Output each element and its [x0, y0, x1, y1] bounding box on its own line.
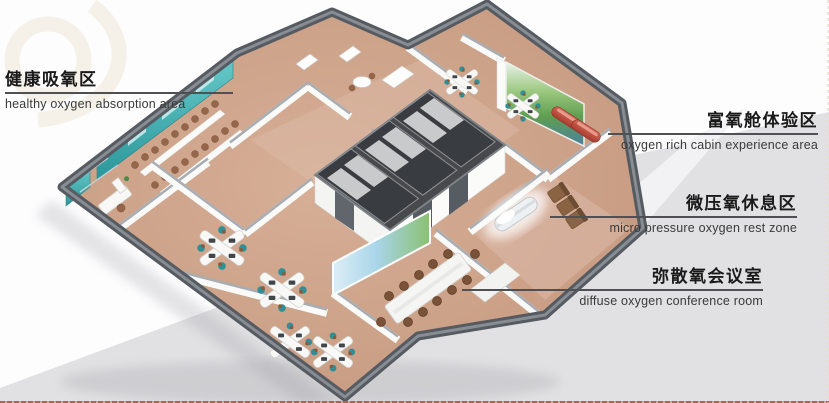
- label-healthy-oxygen-absorption-area: 健康吸氧区 healthy oxygen absorption area: [5, 70, 233, 112]
- label-oxygen-rich-cabin-experience-area: 富氧舱体验区 oxygen rich cabin experience area: [608, 111, 818, 153]
- label-zh-healthy-oxygen: 健康吸氧区: [5, 70, 233, 92]
- label-en-diffuse-conference: diffuse oxygen conference room: [462, 291, 763, 308]
- label-zh-oxygen-rich-cabin: 富氧舱体验区: [608, 111, 818, 133]
- label-zh-micro-pressure-rest: 微压氧休息区: [550, 194, 797, 216]
- oxygen-office-floorplan-infographic: 健康吸氧区 healthy oxygen absorption area 富氧舱…: [0, 0, 829, 403]
- label-zh-diffuse-conference: 弥散氧会议室: [462, 267, 763, 289]
- label-micro-pressure-oxygen-rest-zone: 微压氧休息区 micro pressure oxygen rest zone: [550, 194, 797, 236]
- label-diffuse-oxygen-conference-room: 弥散氧会议室 diffuse oxygen conference room: [462, 267, 763, 309]
- label-en-oxygen-rich-cabin: oxygen rich cabin experience area: [608, 135, 818, 152]
- label-en-healthy-oxygen: healthy oxygen absorption area: [5, 94, 233, 111]
- label-en-micro-pressure-rest: micro pressure oxygen rest zone: [550, 218, 797, 235]
